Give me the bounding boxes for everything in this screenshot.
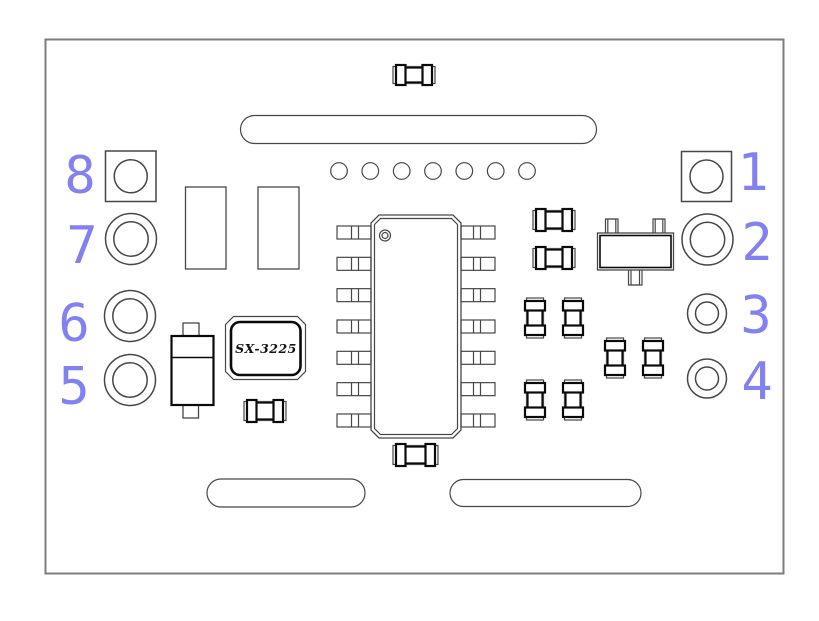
chip-end-cap (563, 383, 583, 393)
sot23-pad-outline (598, 233, 674, 270)
smd-rect-pad-left-1 (186, 187, 227, 269)
pad-4-label: 4 (741, 352, 772, 412)
crystal-label: SX-3225 (235, 341, 297, 356)
capacitor-bottom-lead (183, 404, 199, 418)
pad-8-label: 8 (64, 146, 95, 206)
chip-end-cap (423, 65, 433, 85)
chip-end-cap (563, 408, 583, 418)
capacitor-body (172, 336, 214, 405)
chip-end-cap (525, 301, 545, 311)
pad-3-label: 3 (740, 286, 771, 346)
chip-end-cap (536, 209, 546, 231)
pad-6-label: 6 (58, 294, 89, 354)
chip-end-cap (643, 341, 663, 351)
chip-end-cap (643, 366, 663, 376)
chip-end-cap (563, 301, 583, 311)
polarized-capacitor (172, 323, 214, 418)
chip-end-cap (396, 65, 406, 85)
chip-end-cap (563, 247, 573, 269)
chip-end-cap (605, 366, 625, 376)
chip-end-cap (426, 444, 436, 466)
chip-end-cap (274, 400, 284, 422)
pad-5-label: 5 (58, 357, 89, 417)
chip-end-cap (396, 444, 406, 466)
chip-end-cap (525, 408, 545, 418)
pcb-placement-drawing: SX-3225 1 2 3 4 5 6 7 8 (0, 0, 819, 621)
pad-1-label: 1 (737, 143, 768, 203)
chip-end-cap (605, 341, 625, 351)
capacitor-top-lead (183, 323, 199, 337)
pad-2-label: 2 (741, 213, 772, 273)
chip-end-cap (525, 383, 545, 393)
chip-end-cap (563, 326, 583, 336)
crystal-sx3225: SX-3225 (226, 317, 306, 380)
chip-end-cap (247, 400, 257, 422)
pad-7-label: 7 (66, 216, 97, 276)
ic-body-outline (371, 215, 461, 438)
chip-end-cap (525, 326, 545, 336)
pcb-drawing-canvas: SX-3225 1 2 3 4 5 6 7 8 (0, 0, 819, 621)
chip-end-cap (563, 209, 573, 231)
smd-rect-pad-left-2 (258, 187, 299, 269)
chip-end-cap (536, 247, 546, 269)
